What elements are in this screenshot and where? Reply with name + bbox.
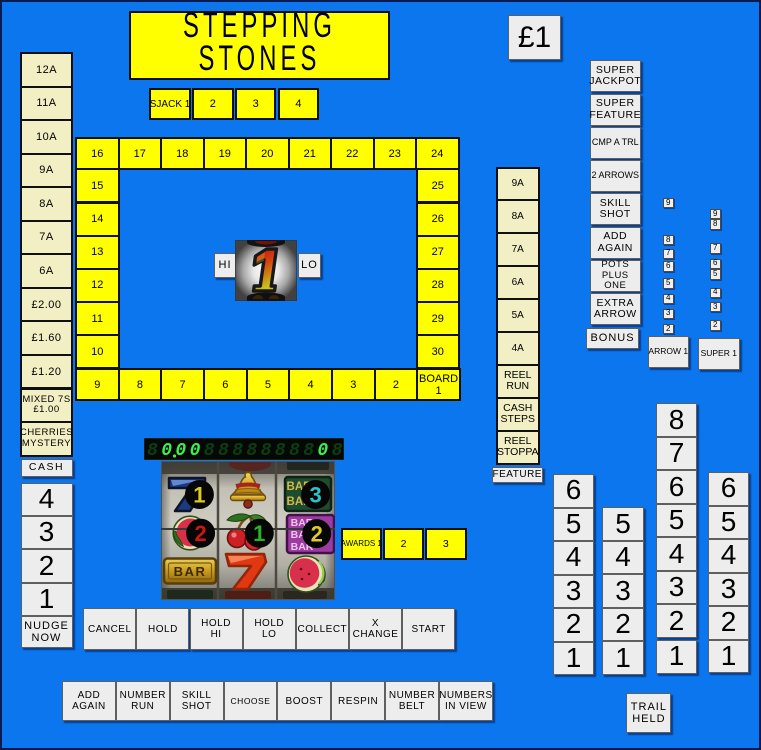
svg-text:8: 8 bbox=[246, 441, 257, 460]
svg-text:1: 1 bbox=[193, 482, 205, 507]
svg-text:8: 8 bbox=[147, 441, 158, 460]
svg-text:1: 1 bbox=[253, 521, 265, 546]
svg-text:BAR: BAR bbox=[174, 564, 207, 579]
svg-text:0: 0 bbox=[190, 441, 201, 460]
svg-text:8: 8 bbox=[332, 441, 343, 460]
svg-text:8: 8 bbox=[232, 441, 243, 460]
svg-text:0: 0 bbox=[317, 441, 328, 460]
svg-text:8: 8 bbox=[275, 441, 286, 460]
svg-text:8: 8 bbox=[218, 441, 229, 460]
svg-text:2: 2 bbox=[311, 521, 323, 546]
svg-text:8: 8 bbox=[289, 441, 300, 460]
svg-text:0: 0 bbox=[175, 441, 186, 460]
svg-text:2: 2 bbox=[194, 521, 206, 546]
svg-text:8: 8 bbox=[303, 441, 314, 460]
svg-text:3: 3 bbox=[309, 482, 321, 507]
svg-text:0: 0 bbox=[161, 441, 172, 460]
svg-text:8: 8 bbox=[204, 441, 215, 460]
svg-text:8: 8 bbox=[261, 441, 272, 460]
